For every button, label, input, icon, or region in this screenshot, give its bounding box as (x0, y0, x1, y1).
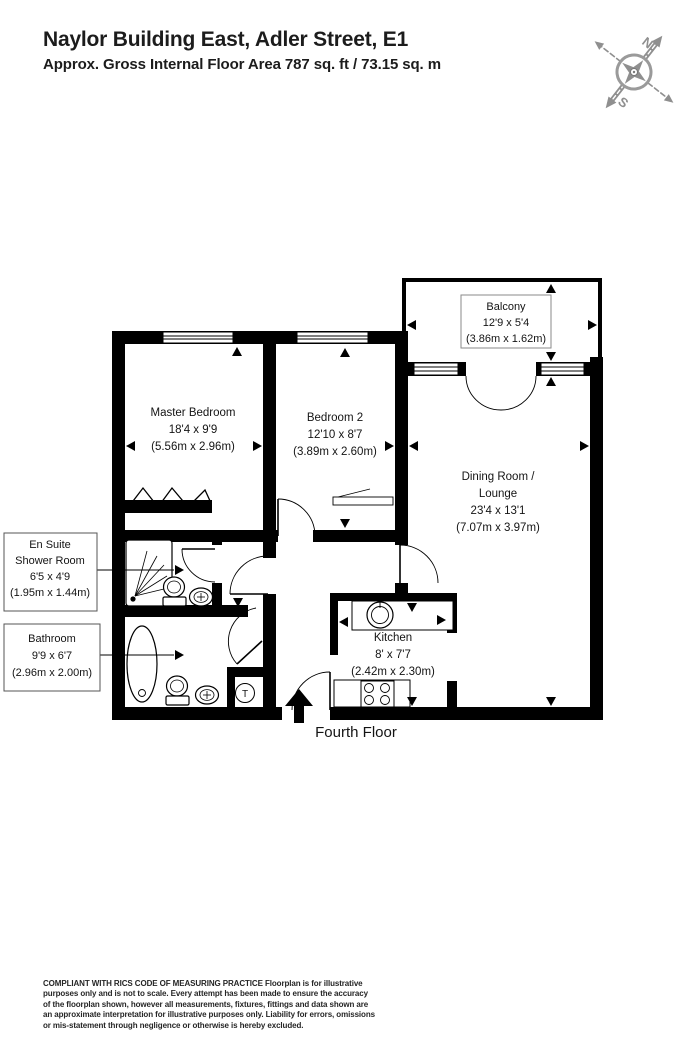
bathroom-metric: (2.96m x 2.00m) (12, 667, 92, 679)
floor-label: Fourth Floor (315, 724, 397, 741)
page-title: Naylor Building East, Adler Street, E1 (43, 28, 563, 52)
kitchen-metric: (2.42m x 2.30m) (351, 666, 435, 678)
door-bedroom2 (278, 499, 315, 536)
sink-ensuite-icon (190, 588, 213, 606)
balcony-metric: (3.86m x 1.62m) (466, 333, 546, 345)
bedroom2-name: Bedroom 2 (307, 412, 363, 424)
label-box-bathroom: Bathroom 9'9 x 6'7 (2.96m x 2.00m) (4, 624, 100, 691)
tank-icon: T (236, 684, 255, 703)
dining-metric: (7.07m x 3.97m) (456, 522, 540, 534)
kitchen-counter-bottom (334, 680, 410, 707)
bedroom2-shelf-icon (333, 489, 393, 505)
toilet-bathroom-icon (166, 676, 189, 705)
header: Naylor Building East, Adler Street, E1 A… (43, 28, 563, 73)
compass-west-arrowhead (592, 38, 604, 50)
door-dining (400, 545, 438, 583)
bathroom-name: Bathroom (28, 633, 76, 645)
tank-label: T (242, 689, 248, 700)
window-bedroom2 (297, 332, 368, 343)
room-dining-lounge: Dining Room / Lounge 23'4 x 13'1 (7.07m … (456, 471, 540, 534)
ensuite-name-2: Shower Room (15, 555, 85, 567)
bathroom-pointer (175, 650, 184, 660)
bedroom2-metric: (3.89m x 2.60m) (293, 446, 377, 458)
room-master-bedroom: Master Bedroom 18'4 x 9'9 (5.56m x 2.96m… (150, 407, 235, 453)
floorplan-diagram: T (0, 268, 700, 768)
ensuite-pointer (175, 565, 184, 575)
room-bedroom2: Bedroom 2 12'10 x 8'7 (3.89m x 2.60m) (293, 412, 377, 458)
ensuite-name-1: En Suite (29, 539, 71, 551)
balcony-wall (402, 278, 602, 282)
balcony-imperial: 12'9 x 5'4 (483, 317, 529, 329)
dining-name-1: Dining Room / (462, 471, 536, 483)
window-dining-left (414, 363, 458, 375)
compass-icon: N S (580, 22, 690, 127)
entrance-arrow-icon (285, 689, 313, 723)
ensuite-imperial: 6'5 x 4'9 (30, 571, 70, 583)
room-balcony: Balcony 12'9 x 5'4 (3.86m x 1.62m) (461, 295, 551, 348)
floorplan-page: { "header": { "title": "Naylor Building … (0, 0, 700, 1050)
compass-east-arrowhead (664, 94, 676, 106)
toilet-ensuite-icon (163, 577, 186, 606)
window-dining-right (541, 363, 584, 375)
room-kitchen: Kitchen 8' x 7'7 (2.42m x 2.30m) (351, 632, 435, 678)
bathtub-icon (127, 626, 157, 702)
master-name: Master Bedroom (150, 407, 235, 419)
master-metric: (5.56m x 2.96m) (151, 441, 235, 453)
master-imperial: 18'4 x 9'9 (169, 424, 218, 436)
window-master-bedroom (163, 332, 233, 343)
dining-name-2: Lounge (479, 488, 517, 500)
door-balcony-french (466, 376, 536, 410)
balcony-name: Balcony (486, 301, 526, 313)
hob-icon (361, 681, 394, 707)
bedroom2-imperial: 12'10 x 8'7 (308, 429, 363, 441)
label-box-ensuite: En Suite Shower Room 6'5 x 4'9 (1.95m x … (4, 533, 97, 611)
page-subtitle: Approx. Gross Internal Floor Area 787 sq… (43, 56, 563, 73)
door-master-bedroom (230, 556, 268, 594)
sink-bathroom-icon (196, 686, 219, 704)
disclaimer-text: COMPLIANT WITH RICS CODE OF MEASURING PR… (43, 979, 377, 1031)
doors (182, 376, 536, 710)
shower-icon (126, 540, 172, 606)
kitchen-name: Kitchen (374, 632, 412, 644)
dining-imperial: 23'4 x 13'1 (471, 505, 526, 517)
door-ensuite (182, 549, 215, 582)
kitchen-imperial: 8' x 7'7 (375, 649, 411, 661)
ensuite-metric: (1.95m x 1.44m) (10, 587, 90, 599)
bathroom-imperial: 9'9 x 6'7 (32, 650, 72, 662)
